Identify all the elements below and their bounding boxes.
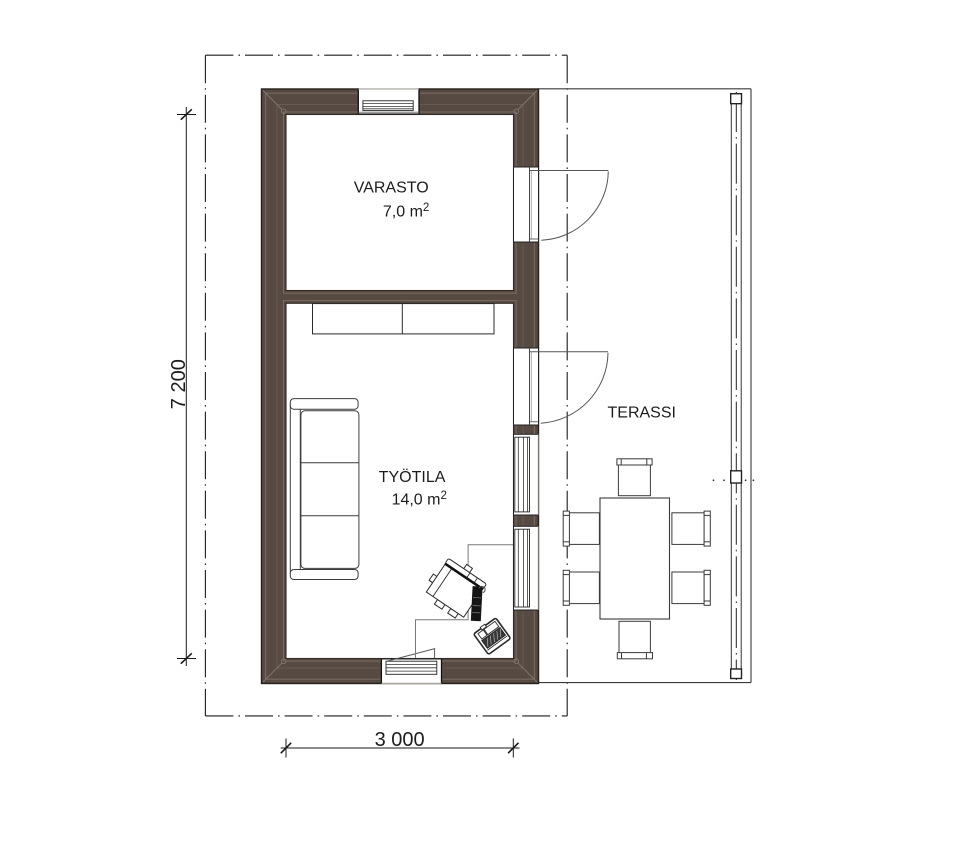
svg-text:TYÖTILA: TYÖTILA (379, 468, 446, 486)
svg-text:TERASSI: TERASSI (608, 405, 676, 422)
svg-text:7,0 m2: 7,0 m2 (383, 202, 429, 221)
svg-text:7 200: 7 200 (168, 359, 190, 409)
svg-text:14,0 m2: 14,0 m2 (392, 490, 447, 509)
svg-text:3 000: 3 000 (375, 729, 425, 751)
svg-text:VARASTO: VARASTO (354, 180, 429, 197)
